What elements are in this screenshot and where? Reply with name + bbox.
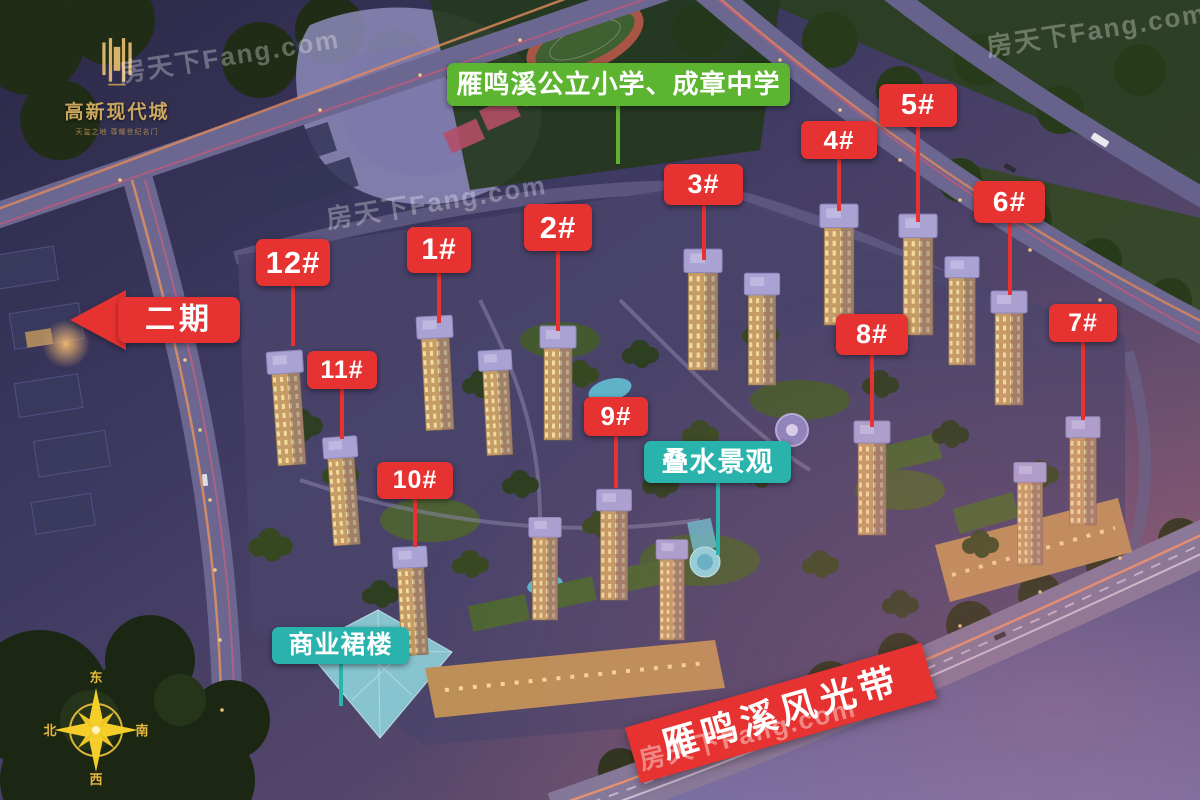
phase2-arrow: 二期: [70, 290, 242, 350]
building-label-4#: 4#: [801, 121, 877, 159]
building-label-7#: 7#: [1049, 304, 1117, 342]
pointer-line: [870, 349, 874, 427]
feature-label-叠水景观: 叠水景观: [644, 441, 791, 483]
building-label-10#: 10#: [377, 462, 453, 499]
building-label-8#: 8#: [836, 314, 908, 355]
compass-east-label: 东: [89, 670, 102, 685]
feature-label-商业裙楼: 商业裙楼: [272, 627, 409, 664]
pointer-line: [1008, 217, 1012, 295]
compass-west-label: 西: [89, 772, 102, 787]
pointer-line: [437, 267, 441, 323]
building-label-6#: 6#: [974, 181, 1045, 223]
pointer-line: [556, 245, 560, 331]
phase2-arrow-label: 二期: [118, 297, 240, 343]
pointer-line: [916, 121, 920, 222]
compass-south-label: 南: [135, 723, 148, 738]
compass-north-label: 北: [43, 723, 56, 738]
building-label-12#: 12#: [256, 239, 330, 286]
pointer-line: [1081, 336, 1085, 420]
building-label-5#: 5#: [879, 84, 957, 127]
pointer-line: [614, 430, 618, 488]
pointer-line: [716, 477, 720, 555]
pointer-line: [291, 280, 295, 346]
pointer-line: [702, 199, 706, 260]
building-label-2#: 2#: [524, 204, 592, 251]
building-label-11#: 11#: [307, 351, 377, 389]
building-label-1#: 1#: [407, 227, 471, 273]
building-label-9#: 9#: [584, 397, 648, 436]
pointer-line: [837, 153, 841, 211]
pointer-line: [339, 658, 343, 706]
pointer-line: [413, 493, 417, 547]
school-pointer-line: [616, 102, 620, 164]
site-plan-rendering: 高新现代城 天玺之地 尊耀世纪名门 雁鸣溪公立小学、成章中学 二期 12#11#…: [0, 0, 1200, 800]
school-label: 雁鸣溪公立小学、成章中学: [447, 63, 790, 106]
building-label-3#: 3#: [664, 164, 743, 205]
logo-tagline: 天玺之地 尊耀世纪名门: [56, 127, 178, 137]
compass-rose-icon: 东 南 西 北: [36, 666, 156, 788]
pointer-line: [340, 383, 344, 439]
logo-name: 高新现代城: [56, 97, 178, 124]
